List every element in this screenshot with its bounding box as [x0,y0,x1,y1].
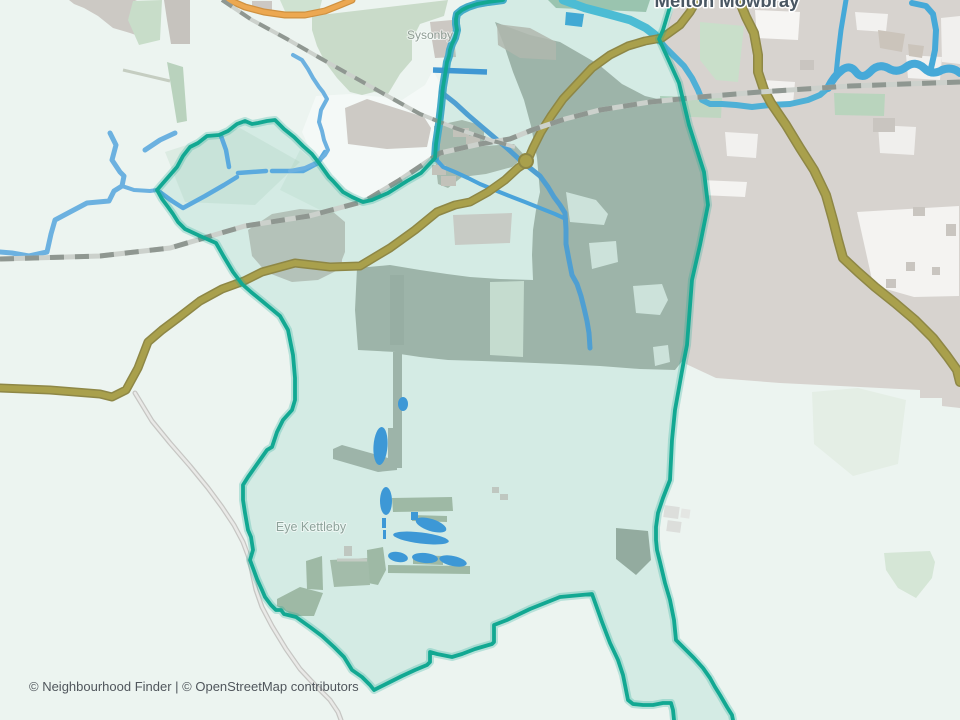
svg-text:Sysonby: Sysonby [407,28,453,42]
svg-text:© Neighbourhood Finder | © Ope: © Neighbourhood Finder | © OpenStreetMap… [29,679,359,694]
svg-text:Melton Mowbray: Melton Mowbray [655,0,801,11]
svg-text:Eye Kettleby: Eye Kettleby [276,520,347,534]
